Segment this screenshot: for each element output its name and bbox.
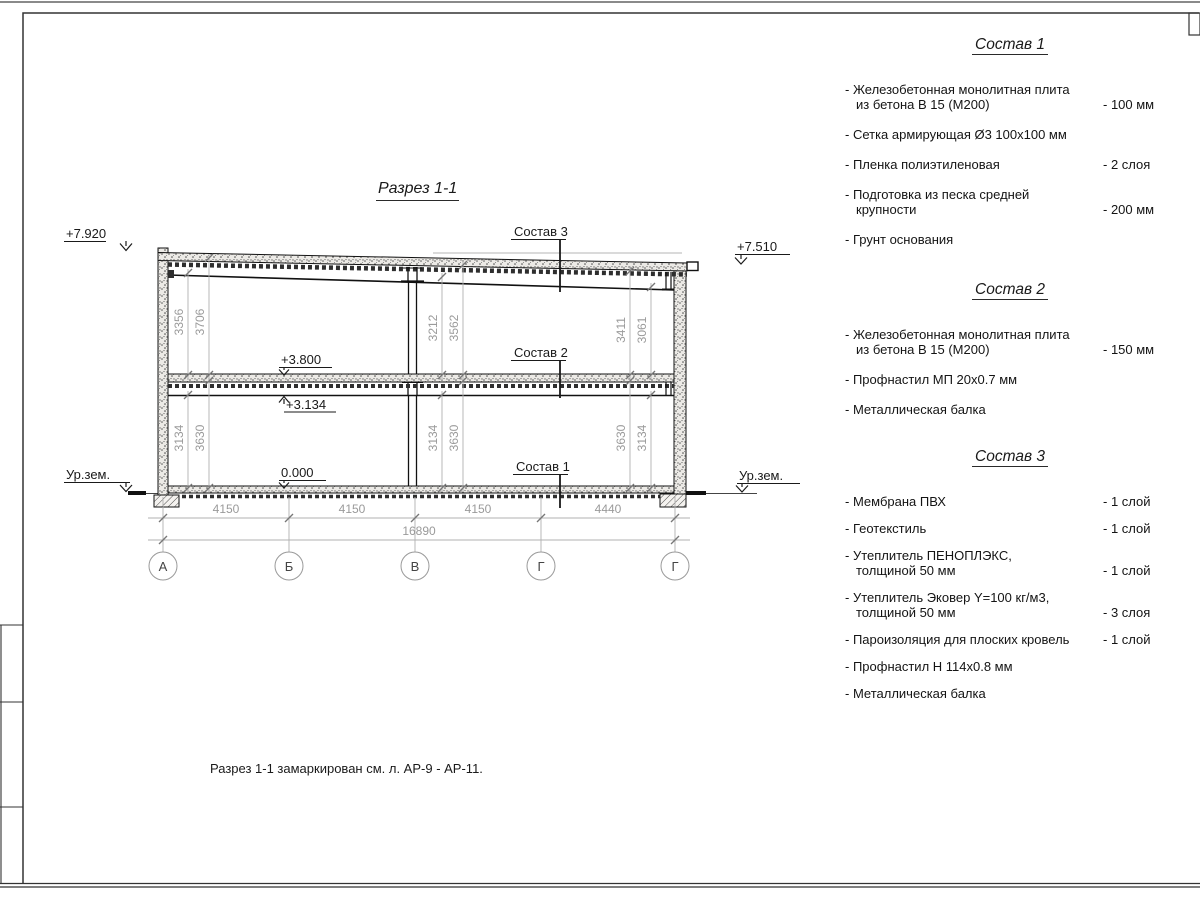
roof: [158, 253, 698, 291]
item-value: - 1 слой: [1103, 632, 1175, 647]
floor-right-joint: [666, 382, 671, 395]
svg-text:Состав 1: Состав 1: [516, 459, 570, 474]
hdim-span-3: 4150: [465, 502, 492, 516]
list-item: - Мембрана ПВХ - 1 слой: [845, 494, 1175, 509]
list-item: - Профнастил Н 114х0.8 мм: [845, 659, 1175, 674]
item-value: - 3 слоя: [1103, 605, 1175, 620]
drawing-sheet: 3356 3706 3212 3562 3411 3061 3134 3630 …: [0, 0, 1200, 900]
list-item: - Утеплитель ПЕНОПЛЭКС,толщиной 50 мм - …: [845, 548, 1175, 578]
svg-text:Состав 3: Состав 3: [514, 224, 568, 239]
vdim-lr2: 3134: [635, 424, 649, 451]
hdim-total: 16890: [402, 524, 436, 538]
column-floor-joint: [402, 382, 423, 395]
left-wall: [158, 248, 168, 495]
item-value: - 1 слой: [1103, 563, 1175, 578]
grid-letter-b: Б: [285, 559, 294, 574]
list-item: - Грунт основания: [845, 232, 1175, 247]
list-item: - Геотекстиль - 1 слой: [845, 521, 1175, 536]
svg-text:+7.510: +7.510: [737, 239, 777, 254]
vdim-ul2: 3706: [193, 308, 207, 335]
list-item: - Профнастил МП 20х0.7 мм: [845, 372, 1175, 387]
frame-corner-box: [1189, 13, 1200, 35]
vertical-dimensions: 3356 3706 3212 3562 3411 3061 3134 3630 …: [172, 254, 655, 492]
svg-text:Состав 2: Состав 2: [514, 345, 568, 360]
footing-left: [154, 495, 179, 507]
elevation-top-left: +7.920: [64, 226, 132, 251]
grid-letter-v: В: [411, 559, 420, 574]
level-arrow: [120, 241, 132, 251]
ground-level-right: Ур.зем.: [736, 468, 800, 492]
section-heading: Состав 1: [845, 37, 1175, 55]
roof-beam-left-bracket: [168, 270, 174, 278]
vdim-um1: 3212: [426, 314, 440, 341]
roof-edge-cap: [687, 262, 698, 271]
list-item: - Сетка армирующая Ø3 100х100 мм: [845, 127, 1175, 142]
composition-section-2: Состав 2 - Железобетонная монолитная пли…: [845, 282, 1175, 432]
svg-text:+7.920: +7.920: [66, 226, 106, 241]
list-item: - Подготовка из песка среднейкрупности -…: [845, 187, 1175, 217]
item-value: - 200 мм: [1103, 202, 1175, 217]
item-value: - 100 мм: [1103, 97, 1175, 112]
elevation-top-right: +7.510: [735, 239, 790, 264]
list-item: - Металлическая балка: [845, 686, 1175, 701]
elevation-beam: +3.134: [279, 397, 336, 413]
list-item: - Пароизоляция для плоских кровель - 1 с…: [845, 632, 1175, 647]
level-arrow: [735, 254, 747, 264]
vdim-lm2: 3630: [447, 424, 461, 451]
vdim-lr1: 3630: [614, 424, 628, 451]
leader-sostav-3: Состав 3: [511, 224, 568, 292]
vdim-ll1: 3134: [172, 424, 186, 451]
grid-axes: А Б В Г Г: [149, 552, 689, 580]
leader-sostav-1: Состав 1: [513, 459, 570, 508]
composition-section-1: Состав 1 - Железобетонная монолитная пли…: [845, 37, 1175, 262]
svg-text:+3.800: +3.800: [281, 352, 321, 367]
hdim-span-2: 4150: [339, 502, 366, 516]
footing-right: [660, 494, 686, 507]
svg-text:Ур.зем.: Ур.зем.: [66, 467, 110, 482]
svg-text:+3.134: +3.134: [286, 397, 326, 412]
vdim-ll2: 3630: [193, 424, 207, 451]
elevation-zero: 0.000: [279, 465, 326, 488]
section-heading: Состав 3: [845, 449, 1175, 467]
list-item: - Железобетонная монолитная плитаиз бето…: [845, 327, 1175, 357]
item-value: - 150 мм: [1103, 342, 1175, 357]
svg-text:Ур.зем.: Ур.зем.: [739, 468, 783, 483]
vdim-ul1: 3356: [172, 308, 186, 335]
leader-sostav-2: Состав 2: [511, 345, 568, 398]
item-value: - 1 слой: [1103, 494, 1175, 509]
drawing-view-title: Разрез 1-1: [376, 180, 459, 201]
hdim-span-4: 4440: [595, 502, 622, 516]
grid-letter-a: А: [159, 559, 168, 574]
list-item: - Утеплитель Эковер Y=100 кг/м3,толщиной…: [845, 590, 1175, 620]
grid-letter-g1: Г: [537, 559, 544, 574]
list-item: - Пленка полиэтиленовая - 2 слоя: [845, 157, 1175, 172]
vdim-um2: 3562: [447, 314, 461, 341]
composition-section-3: Состав 3 - Мембрана ПВХ - 1 слой - Геоте…: [845, 449, 1175, 713]
horizontal-dimensions: 4150 4150 4150 4440 16890 А Б В: [148, 497, 690, 580]
list-item: - Металлическая балка: [845, 402, 1175, 417]
list-item: - Железобетонная монолитная плитаиз бето…: [845, 82, 1175, 112]
vdim-ur2: 3061: [635, 316, 649, 343]
svg-text:0.000: 0.000: [281, 465, 314, 480]
elevation-floor: +3.800: [279, 352, 332, 375]
section-heading: Состав 2: [845, 282, 1175, 300]
item-value: - 1 слой: [1103, 521, 1175, 536]
intermediate-floor: [168, 374, 674, 396]
ground-level-left: Ур.зем.: [64, 467, 132, 492]
hdim-span-1: 4150: [213, 502, 240, 516]
drawing-view-title-text: Разрез 1-1: [376, 180, 459, 201]
item-value: - 2 слоя: [1103, 157, 1175, 172]
vdim-ur1: 3411: [614, 317, 628, 343]
level-arrow: [120, 482, 132, 492]
building-section: [128, 248, 757, 507]
reference-note: Разрез 1-1 замаркирован см. л. АР-9 - АР…: [210, 761, 483, 776]
dimension-ticks: [184, 254, 655, 492]
frame-left-margin-boxes: [0, 625, 23, 884]
level-arrow: [736, 483, 748, 492]
grid-letter-g2: Г: [671, 559, 678, 574]
vdim-lm1: 3134: [426, 424, 440, 451]
right-wall: [674, 270, 686, 495]
